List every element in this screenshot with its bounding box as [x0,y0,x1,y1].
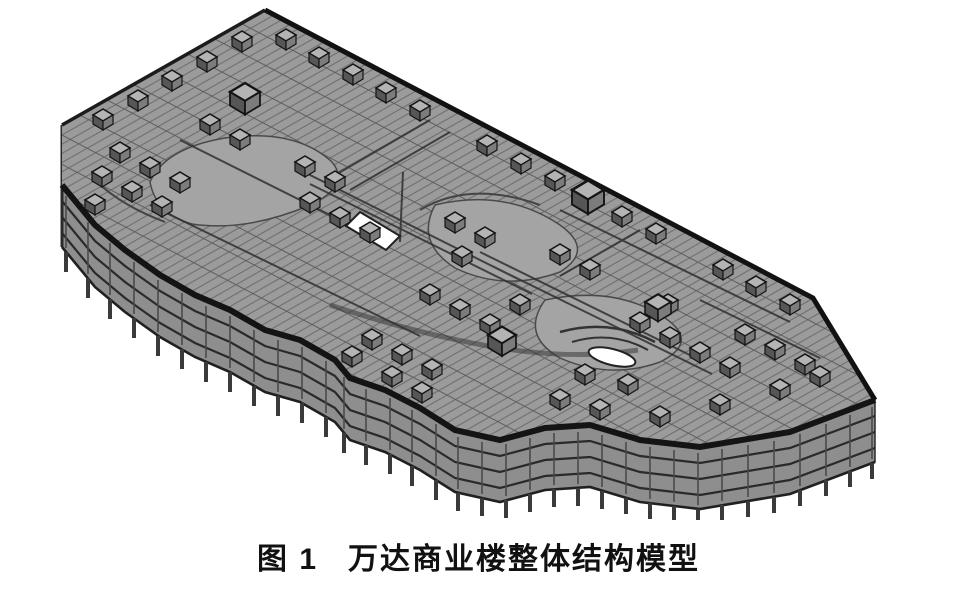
building-model-drawing [0,0,957,520]
figure-structural-model: 图 1万达商业楼整体结构模型 [0,0,957,612]
figure-label: 图 1 [257,543,318,576]
figure-caption: 图 1万达商业楼整体结构模型 [0,534,957,578]
page: { "page": { "background": "#ffffff" }, "… [0,0,957,612]
figure-title: 万达商业楼整体结构模型 [348,543,700,576]
model-image [0,0,957,520]
